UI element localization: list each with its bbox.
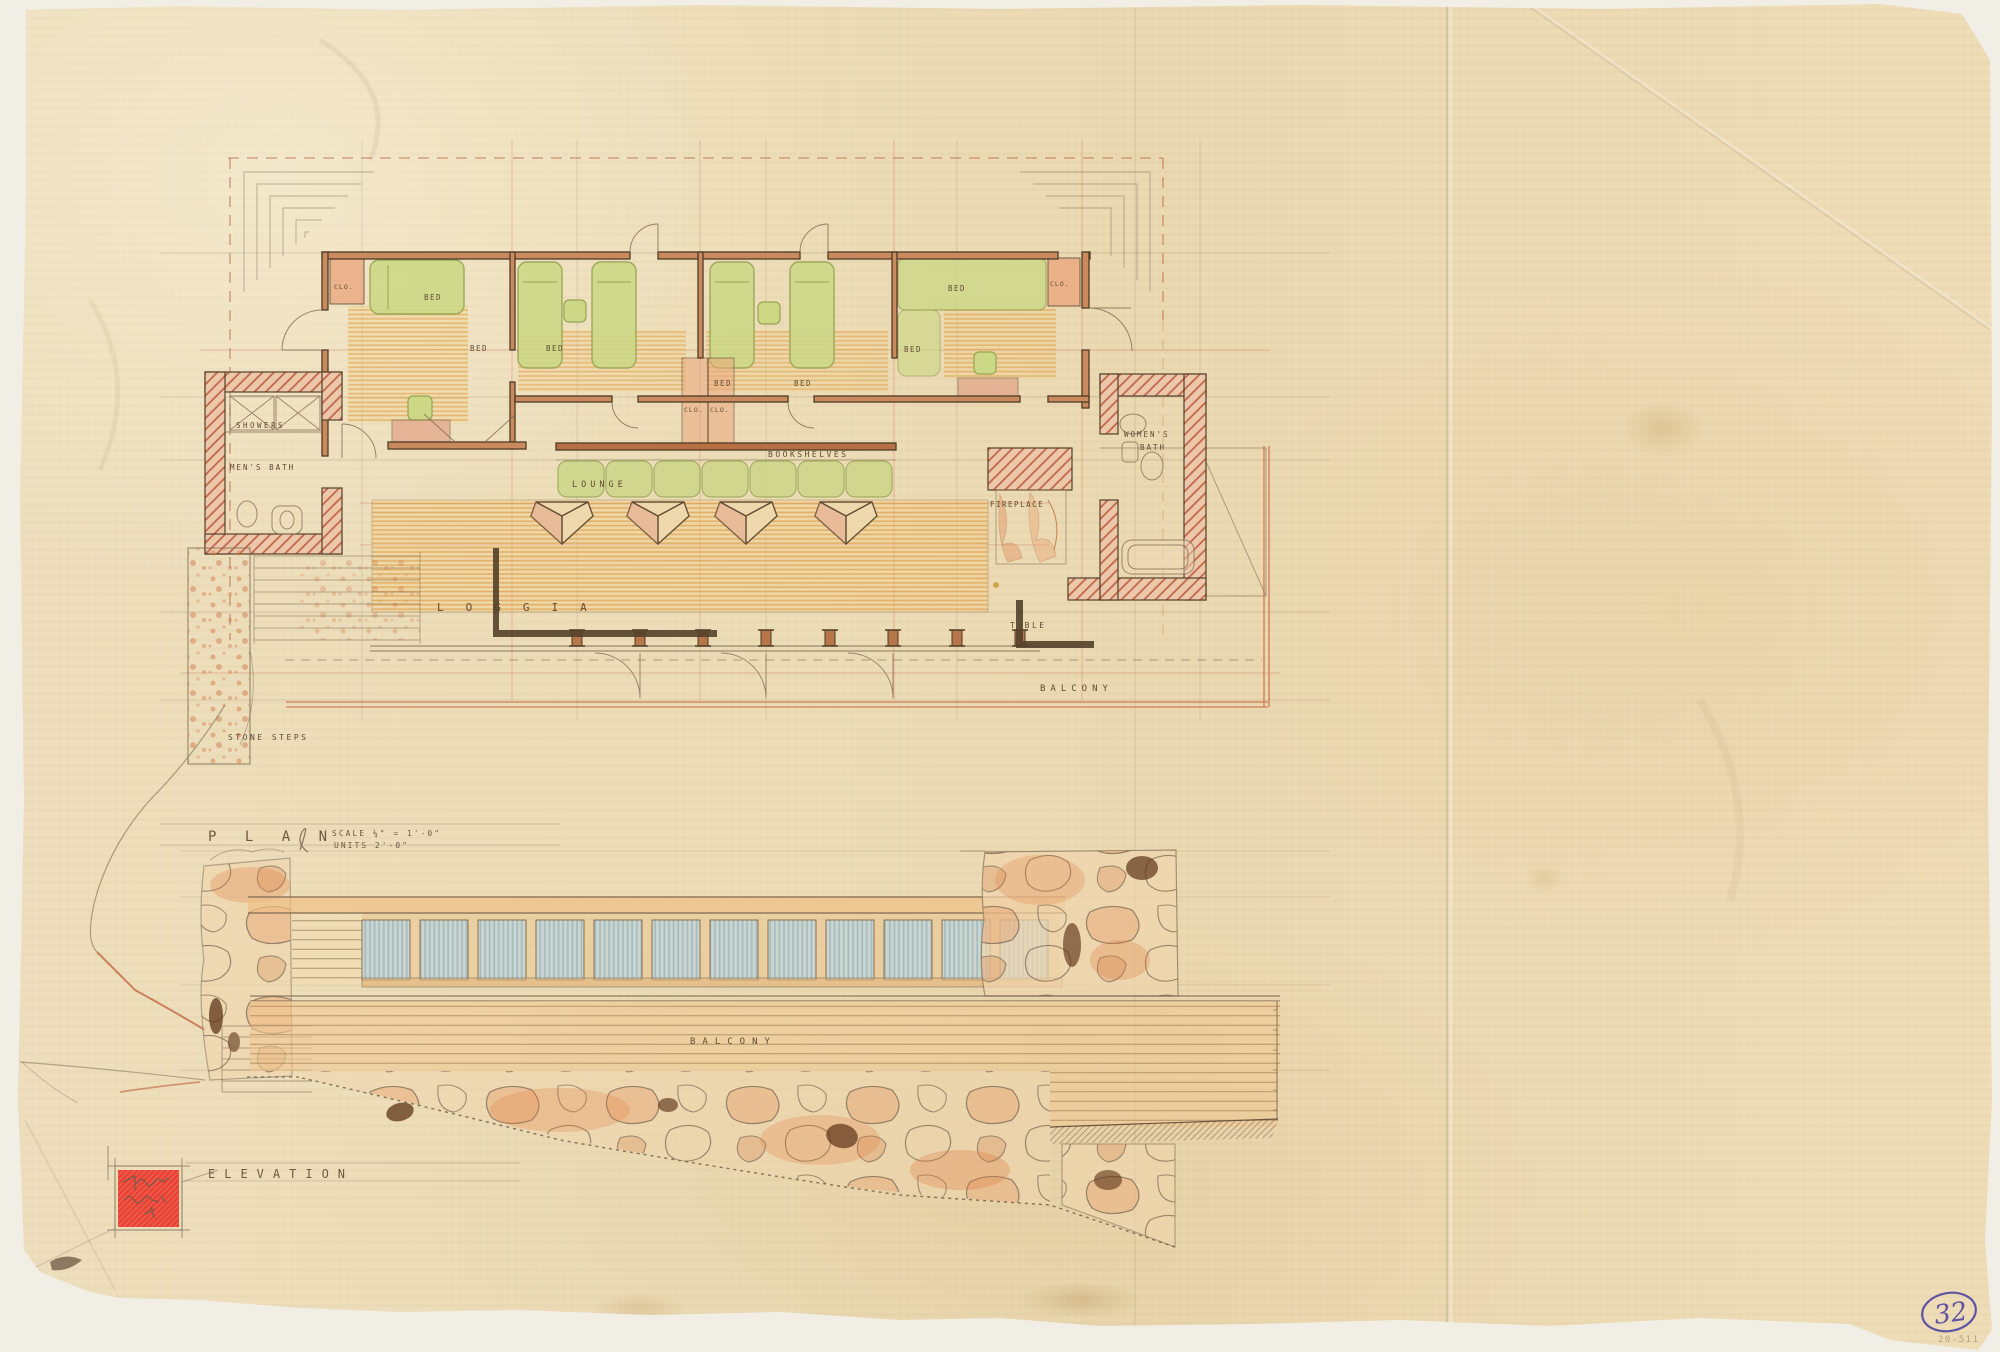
label-bed: BED — [546, 344, 564, 353]
label-table: TABLE — [1010, 621, 1047, 630]
label-balcony-plan: BALCONY — [1040, 684, 1113, 694]
label-closet: CLO. — [1050, 280, 1070, 288]
stone-foundation — [247, 1071, 1175, 1247]
label-bed: BED — [904, 345, 922, 354]
label-bed: BED — [794, 379, 812, 388]
label-closet: CLO. — [334, 283, 354, 291]
label-closet: CLO. — [684, 406, 704, 414]
plan-title-block: P L A N SCALE ¼" = 1'-0" UNITS 2'-0" — [160, 824, 560, 852]
roof-fascia — [248, 897, 1065, 913]
label-balcony-elevation: BALCONY — [690, 1037, 777, 1047]
label-bed: BED — [424, 293, 442, 302]
sheet-number-text: 32 — [1932, 1297, 1969, 1331]
loggia-floor: LOGGIA — [372, 500, 999, 614]
label-lounge: LOUNGE — [572, 480, 627, 490]
bedroom-wing: BED BED BED BED BED BED BED CLO. CLO. CL… — [282, 224, 1132, 458]
label-fireplace: FIREPLACE — [990, 500, 1044, 509]
plan-scale-note: SCALE ¼" = 1'-0" — [332, 829, 441, 838]
catalog-code: 20-511 — [1938, 1335, 1980, 1345]
chimney-masonry — [960, 850, 1178, 996]
label-showers: SHOWERS — [236, 421, 285, 430]
label-stone-steps: STONE STEPS — [228, 733, 308, 742]
label-bookshelves: BOOKSHELVES — [768, 450, 848, 459]
elevation-title-block: ELEVATION — [185, 1163, 520, 1181]
sheet-number: 32 20-511 — [1919, 1289, 1979, 1345]
stone-steps: STONE STEPS — [188, 548, 420, 764]
womens-bath: WOMEN'S BATH — [1100, 374, 1206, 600]
fireplace: FIREPLACE — [988, 448, 1102, 600]
label-bed: BED — [470, 344, 488, 353]
plan-units-note: UNITS 2'-0" — [334, 841, 409, 850]
elevation-drawing: BALCONY — [20, 849, 1330, 1247]
label-closet: CLO. — [710, 406, 730, 414]
architect-stamp — [30, 1146, 218, 1270]
label-bed: BED — [948, 284, 966, 293]
label-womens-bath2: BATH — [1140, 443, 1166, 452]
elevation-title: ELEVATION — [208, 1167, 354, 1181]
label-loggia: LOGGIA — [437, 601, 609, 614]
scanned-drawing-backdrop: BED BED BED BED BED BED BED CLO. CLO. CL… — [0, 0, 2000, 1352]
label-womens-bath: WOMEN'S — [1124, 430, 1170, 439]
lounge-bench: BOOKSHELVES LOUNGE — [556, 450, 896, 497]
plan-title: P L A N — [208, 829, 337, 845]
tracing-paper-sheet: BED BED BED BED BED BED BED CLO. CLO. CL… — [0, 0, 2000, 1352]
mens-bath: SHOWERS MEN'S BATH — [205, 372, 342, 554]
label-bed: BED — [714, 379, 732, 388]
window-band — [292, 913, 1062, 987]
drawing-canvas: BED BED BED BED BED BED BED CLO. CLO. CL… — [0, 0, 2000, 1352]
paper-spot — [993, 582, 999, 588]
label-mens-bath: MEN'S BATH — [230, 463, 295, 472]
registration-marks — [10, 8, 26, 64]
